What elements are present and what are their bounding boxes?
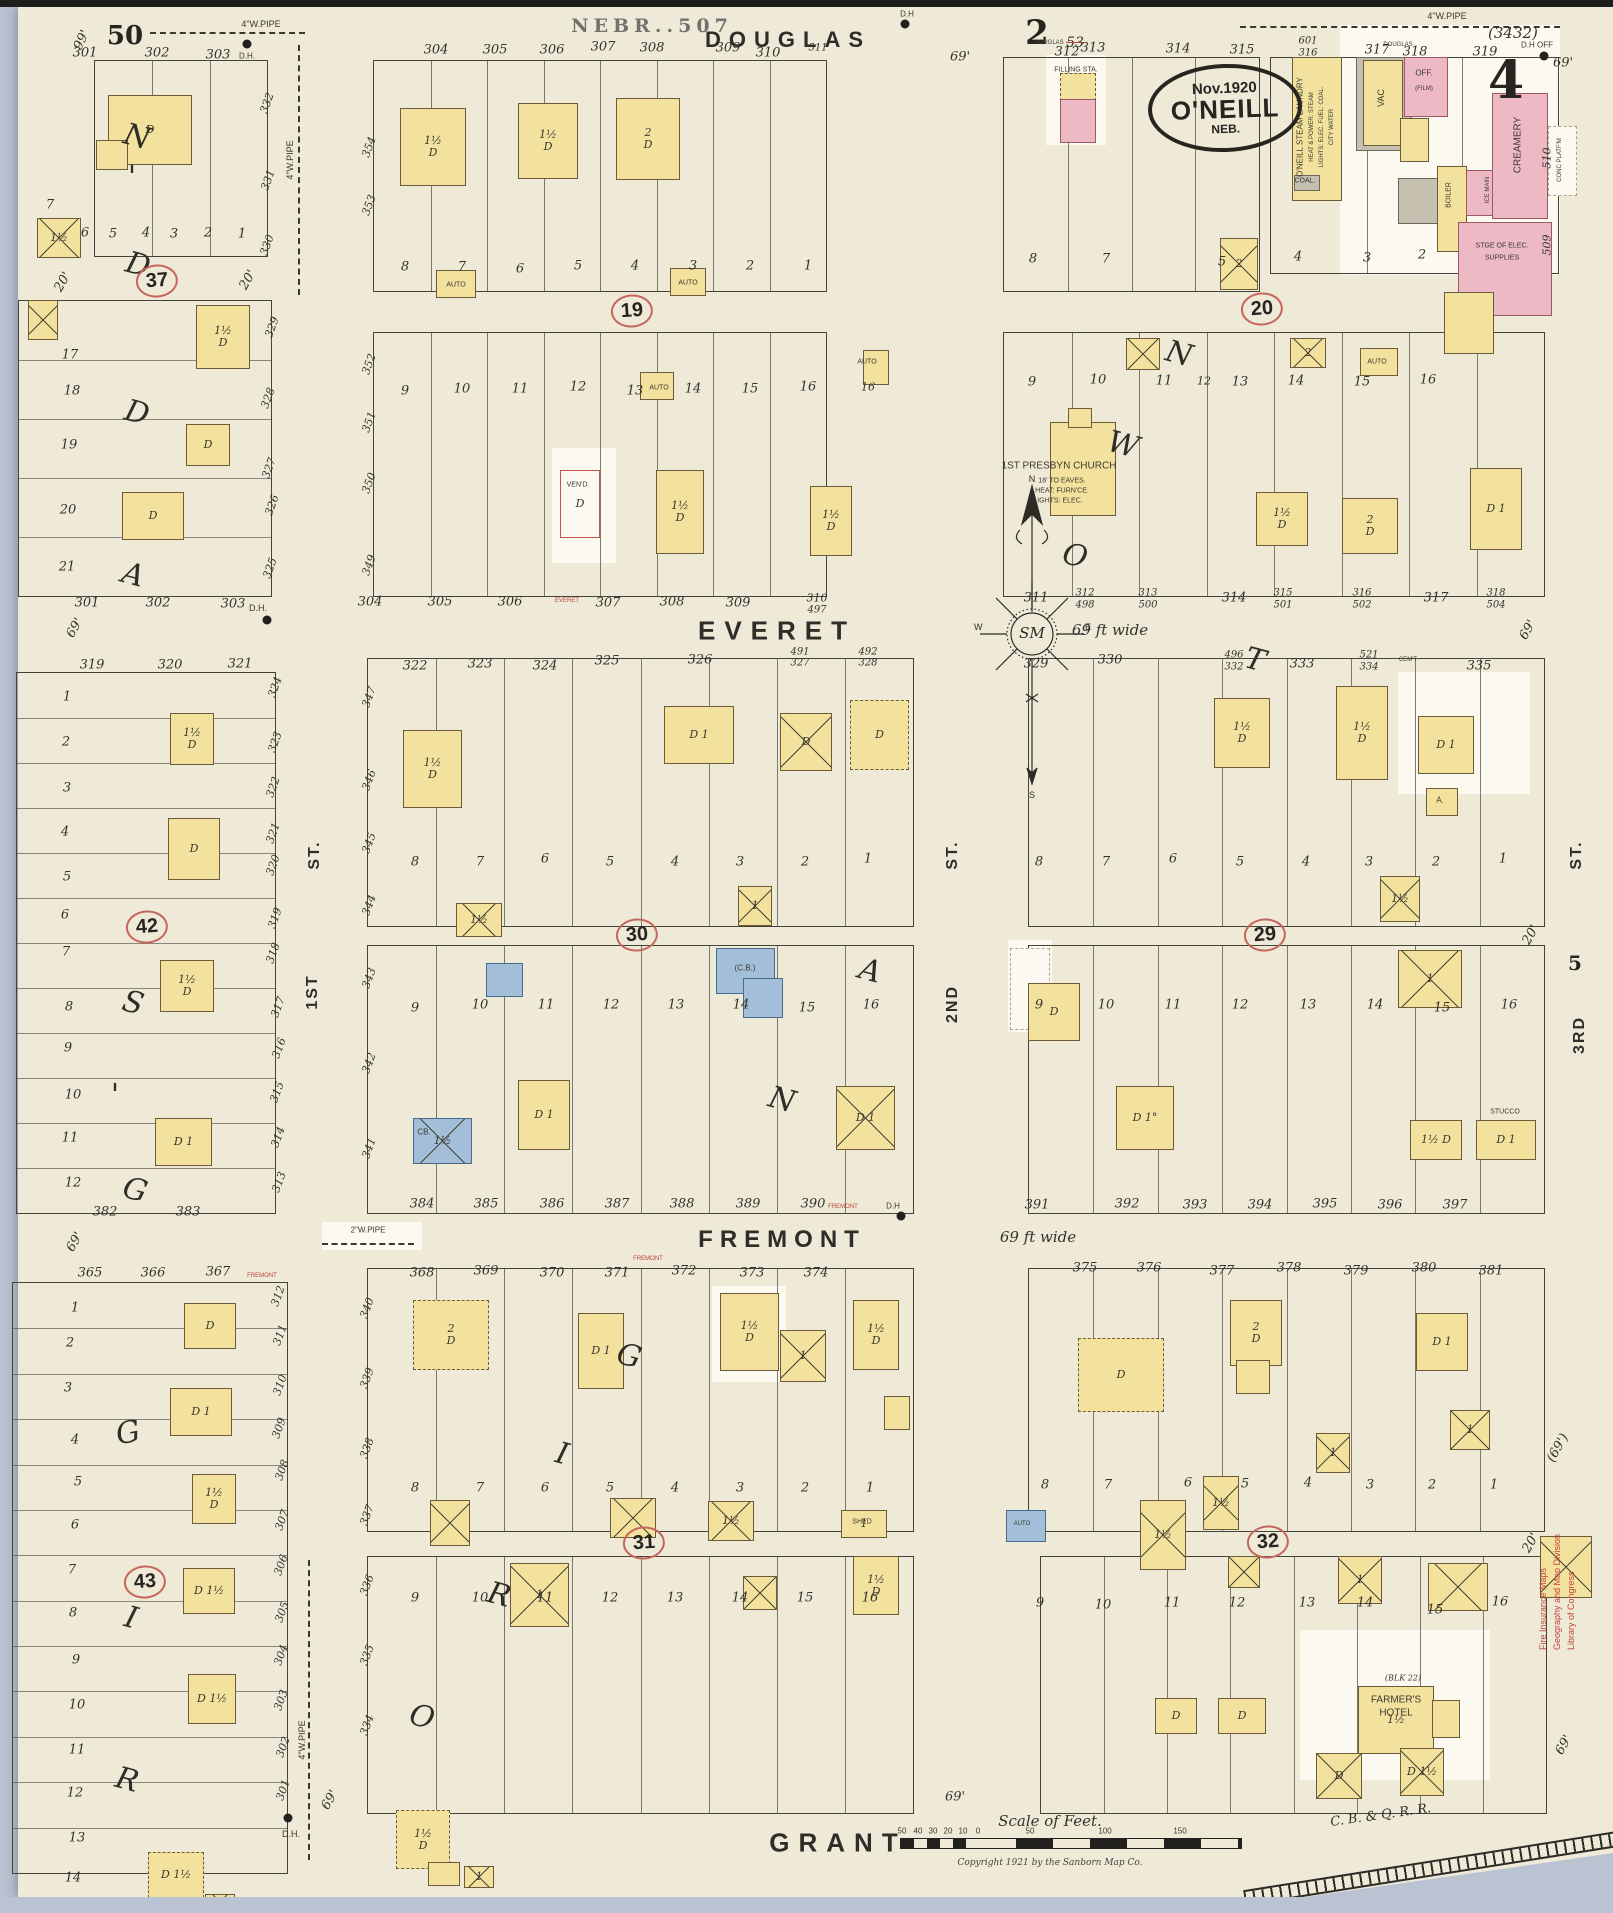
map-label: CB. — [417, 1128, 430, 1137]
building-label: 1 — [1467, 1424, 1474, 1436]
lot-number: 8 — [65, 1000, 73, 1015]
building — [1068, 408, 1092, 428]
block-number-circle: 20 — [1240, 291, 1284, 327]
lot-number: 16 — [800, 380, 817, 395]
lot-line — [1207, 333, 1208, 596]
lot-line — [504, 1269, 505, 1531]
lot-number: 6 — [1184, 1476, 1192, 1491]
lot-line — [504, 659, 505, 926]
lot-line — [1158, 946, 1159, 1213]
lot-line — [1415, 1269, 1416, 1531]
lot-number: 2 — [1432, 855, 1440, 870]
lot-line — [845, 659, 846, 926]
lot-line — [1132, 58, 1133, 291]
lot-number: 3 — [1366, 1478, 1374, 1493]
lot-number: 392 — [1115, 1197, 1140, 1212]
lot-number: 2 — [801, 1481, 809, 1496]
lot-number: 11 — [1165, 998, 1182, 1013]
copyright-line: Copyright 1921 by the Sanborn Map Co. — [957, 1858, 1142, 1868]
building-label: 1 — [476, 1871, 483, 1883]
lot-number: 305 — [428, 595, 453, 610]
lot-number: 305 — [483, 43, 508, 58]
lot-number: 2 — [62, 735, 70, 750]
scale-tick-label: 30 — [929, 1827, 938, 1836]
building: D — [1218, 1698, 1266, 1734]
building-label: D 1 — [591, 1345, 610, 1357]
lot-number: 16 — [1420, 373, 1437, 388]
building-label: D 1 — [689, 729, 708, 741]
building: D 1½ — [188, 1674, 236, 1724]
lot-number: 321 — [228, 657, 253, 672]
map-label: D.H. — [282, 1829, 300, 1839]
lot-line — [17, 718, 275, 719]
map-label: VEN'D. — [567, 482, 590, 489]
lot-number: 387 — [605, 1197, 630, 1212]
building-label: D — [204, 439, 213, 451]
lot-number: 3 — [1363, 251, 1371, 266]
lot-number: 14 — [733, 998, 750, 1013]
lot-number: 370 — [540, 1266, 565, 1281]
map-label: ICE MAIN — [1485, 177, 1491, 204]
building-label: 2 D — [447, 1323, 456, 1346]
water-pipe-line — [298, 45, 300, 295]
lot-number: 396 — [1378, 1198, 1403, 1213]
building — [1228, 1556, 1260, 1588]
map-label: AUTO — [446, 282, 465, 289]
building: 1 — [1316, 1433, 1350, 1473]
map-label: 20' — [51, 270, 74, 295]
building: 1½ D — [853, 1300, 899, 1370]
lot-line — [17, 1168, 275, 1169]
building-label: 1 — [1427, 973, 1434, 985]
lot-number: 315 — [1273, 588, 1292, 599]
lot-number: 9 — [411, 1591, 419, 1606]
building-label: D 1 — [1432, 1336, 1451, 1348]
building: D — [1155, 1698, 1197, 1734]
lot-number: 8 — [1035, 855, 1043, 870]
lot-line — [770, 61, 771, 291]
hydrant-dot — [1540, 52, 1549, 61]
water-pipe-line — [150, 32, 305, 34]
lot-number: 13 — [627, 384, 644, 399]
building: D 1 — [836, 1086, 895, 1150]
lot-number: 1 — [238, 227, 246, 242]
lot-line — [1480, 659, 1481, 926]
lot-number: 6 — [81, 226, 89, 241]
building: D — [122, 492, 184, 540]
lot-number: 16 — [861, 381, 875, 394]
building: D — [560, 470, 600, 538]
lot-line — [641, 946, 642, 1213]
building: 1½ — [708, 1501, 754, 1541]
building — [1444, 292, 1494, 354]
lot-number: 316 — [1352, 588, 1371, 599]
lot-number: 316 — [1298, 48, 1317, 59]
scale-tick-label: 50 — [898, 1827, 907, 1836]
lot-number: 3 — [736, 1481, 744, 1496]
building-label: 2 — [1305, 347, 1312, 359]
street-label: ST. — [1568, 840, 1586, 869]
lot-number: 308 — [640, 41, 665, 56]
lot-number: 11 — [538, 998, 555, 1013]
building: 1 — [780, 1330, 826, 1382]
building: 1½ D — [1256, 492, 1308, 546]
scale-tick-label: 40 — [914, 1827, 923, 1836]
building: 2 — [1290, 338, 1326, 368]
map-label: VAC — [1376, 89, 1386, 107]
lot-number: 7 — [476, 855, 484, 870]
building — [884, 1396, 910, 1430]
building: D 1 — [1470, 468, 1522, 550]
lot-number: 9 — [1036, 1596, 1044, 1611]
lot-number: 3 — [689, 259, 697, 274]
lot-line — [13, 1646, 287, 1647]
lot-number: 2 — [204, 226, 212, 241]
street-label: EVERET — [698, 616, 856, 647]
plat-letter: ' — [111, 1078, 119, 1113]
building: D 1 — [155, 1118, 212, 1166]
lot-line — [1342, 333, 1343, 596]
building-label: 1½ D — [671, 500, 689, 523]
lot-number: 2 — [746, 259, 754, 274]
lot-number: 333 — [1290, 657, 1315, 672]
lot-number: 14 — [1367, 998, 1384, 1013]
library-of-congress-stamp: Fire Insurance Maps Geography and Map Di… — [1538, 1400, 1598, 1660]
lot-number: 5 — [1241, 1477, 1249, 1492]
building-label: 1 — [752, 900, 759, 912]
lot-number: 16 — [1492, 1595, 1509, 1610]
building: D 1 — [518, 1080, 570, 1150]
building: 2 D — [413, 1300, 489, 1370]
building-label: 1½ D — [741, 1320, 759, 1343]
lot-line — [431, 333, 432, 596]
scale-tick-label: 150 — [1173, 1827, 1186, 1836]
map-label: EVERET — [555, 598, 579, 604]
lot-number: 6 — [1169, 852, 1177, 867]
lot-number: 15 — [799, 1001, 816, 1016]
lot-number: 307 — [591, 40, 616, 55]
lot-number: 13 — [668, 998, 685, 1013]
map-label: LIGHTS: ELEC. FUEL: COAL. — [1319, 87, 1325, 168]
lot-number: 7 — [1102, 855, 1110, 870]
building-label: D — [1117, 1369, 1126, 1381]
lot-number: 491 — [790, 647, 809, 658]
lot-number: 7 — [1104, 1478, 1112, 1493]
map-label: 69' — [63, 1230, 86, 1255]
building — [1432, 1700, 1460, 1738]
lot-line — [1222, 946, 1223, 1213]
hydrant-dot — [897, 1212, 906, 1221]
lot-line — [13, 1601, 287, 1602]
lot-number: 14 — [65, 1871, 82, 1886]
lot-line — [713, 333, 714, 596]
loc-stamp-line: Library of Congress — [1566, 1571, 1576, 1650]
sheet-number: 4 — [1488, 50, 1524, 111]
sanborn-map-sheet: 1½D1½ DDD1½ DD1½ DD 1DD 11½ DD 1½D 1½D 1… — [0, 0, 1613, 1913]
compass-east: E — [1085, 622, 1091, 632]
city-block — [1028, 658, 1545, 927]
building-label: 1 — [800, 1350, 807, 1362]
lot-number: 14 — [732, 1591, 749, 1606]
lot-number: 501 — [1273, 600, 1292, 611]
map-label: A. — [1436, 796, 1444, 805]
lot-number: 4 — [71, 1433, 79, 1448]
scale-tick-label: 20 — [944, 1827, 953, 1836]
lot-number: 15 — [742, 382, 759, 397]
building — [428, 1862, 460, 1886]
water-pipe-line — [308, 1560, 310, 1860]
map-label: 2 — [1025, 13, 1049, 53]
lot-number: 18 — [64, 384, 81, 399]
building: D 1 — [1418, 716, 1474, 774]
lot-line — [1158, 659, 1159, 926]
building-label: 1½ D — [1353, 721, 1371, 744]
building — [486, 963, 523, 997]
building-label: D — [206, 1320, 215, 1332]
map-label: CEM'T — [1399, 657, 1417, 663]
lot-number: 388 — [670, 1197, 695, 1212]
lot-number: 4 — [1304, 1476, 1312, 1491]
lot-number: 5 — [74, 1475, 82, 1490]
lot-line — [709, 1557, 710, 1813]
lot-number: 14 — [685, 382, 702, 397]
lot-number: 3 — [64, 1381, 72, 1396]
building: D — [184, 1303, 236, 1349]
building: 1½ D — [518, 103, 578, 179]
compass-monogram: SM — [1019, 624, 1045, 642]
lot-number: 1 — [63, 690, 71, 705]
lot-number: 19 — [61, 438, 78, 453]
building: 1½ D — [400, 108, 466, 186]
lot-number: 6 — [541, 1481, 549, 1496]
lot-number: 13 — [1232, 375, 1249, 390]
lot-number: 3 — [1365, 855, 1373, 870]
lot-number: 1 — [864, 852, 872, 867]
street-label: 2ND — [944, 985, 962, 1023]
building-label: D — [190, 843, 199, 855]
building — [28, 300, 58, 340]
lot-number: 4 — [1294, 250, 1302, 265]
lot-number: 318 — [1403, 45, 1428, 60]
lot-number: 4 — [61, 825, 69, 840]
lot-number: 378 — [1277, 1261, 1302, 1276]
lot-number: 15 — [797, 1591, 814, 1606]
lot-line — [1480, 1269, 1481, 1531]
lot-number: 306 — [498, 595, 523, 610]
hydrant-dot — [243, 40, 252, 49]
lot-number: 1 — [71, 1301, 79, 1316]
building: 1½ — [1140, 1500, 1186, 1570]
building-label: 1½ D — [183, 727, 201, 750]
building: 1½ D — [170, 713, 214, 765]
lot-number: 334 — [1359, 662, 1378, 673]
lot-number: 9 — [1028, 375, 1036, 390]
building: D 1 — [1416, 1313, 1468, 1371]
lot-number: 3 — [170, 227, 178, 242]
volume-number: (3432) — [1488, 24, 1538, 42]
lot-number: 11 — [537, 1591, 554, 1606]
lot-number: 510 — [1541, 148, 1554, 169]
block-number-circle: 19 — [610, 293, 654, 329]
hydrant-dot — [263, 616, 272, 625]
map-label: 5 — [1568, 951, 1582, 975]
lot-number: 12 — [603, 998, 620, 1013]
lot-number: 5 — [574, 259, 582, 274]
building-label: 1½ — [50, 232, 68, 244]
lot-line — [19, 478, 271, 479]
building-label: 1½ D — [424, 135, 442, 158]
lot-number: 11 — [62, 1131, 79, 1146]
loc-stamp-line: Geography and Map Division — [1552, 1534, 1562, 1650]
lot-line — [709, 659, 710, 926]
lot-line — [13, 1510, 287, 1511]
lot-line — [845, 946, 846, 1213]
lot-number: 8 — [69, 1606, 77, 1621]
lot-number: 307 — [596, 596, 621, 611]
building-label: D — [1172, 1710, 1181, 1722]
lot-line — [713, 61, 714, 291]
building-label: 2 D — [1366, 514, 1375, 537]
lot-number: 327 — [790, 658, 809, 669]
lot-line — [1093, 659, 1094, 926]
building-label: 1½ D — [1273, 507, 1291, 530]
lot-number: 509 — [1541, 235, 1554, 256]
map-label: CREAMERY — [1513, 117, 1524, 174]
lot-number: 521 — [1359, 650, 1378, 661]
lot-line — [544, 333, 545, 596]
street-label: ST. — [306, 840, 324, 869]
building — [1126, 338, 1160, 370]
street-label: ST. — [944, 840, 962, 869]
lot-number: 395 — [1313, 1197, 1338, 1212]
lot-number: 10 — [454, 382, 471, 397]
map-label: D.H — [900, 10, 914, 19]
map-label: STGE OF ELEC. — [1476, 243, 1529, 250]
lot-number: 496 — [1224, 650, 1243, 661]
lot-line — [1287, 659, 1288, 926]
map-label: COAL. — [1294, 178, 1315, 185]
block-number-circle: 37 — [135, 263, 179, 299]
street-label: 3RD — [1571, 1016, 1589, 1054]
lot-number: 4 — [671, 855, 679, 870]
building: 1½ — [456, 903, 502, 937]
map-label: OFF. — [1415, 69, 1432, 78]
lot-number: 380 — [1412, 1261, 1437, 1276]
lot-number: 11 — [1156, 374, 1173, 389]
lot-number: 308 — [660, 595, 685, 610]
building-label: D 1 — [534, 1109, 553, 1121]
building: 1½ D — [192, 1474, 236, 1524]
lot-number: 325 — [595, 654, 620, 669]
lot-number: 8 — [411, 855, 419, 870]
lot-line — [709, 946, 710, 1213]
map-label: 4"W.PIPE — [241, 19, 280, 29]
building: 1½ D — [810, 486, 852, 556]
lot-number: 13 — [667, 1591, 684, 1606]
lot-number: 391 — [1025, 1198, 1050, 1213]
map-label: SUPPLIES — [1485, 255, 1519, 262]
lot-line — [845, 1557, 846, 1813]
lot-number: 302 — [145, 46, 170, 61]
lot-number: 385 — [474, 1197, 499, 1212]
lot-number: 302 — [146, 596, 171, 611]
lot-number: 1 — [1490, 1478, 1498, 1493]
building: D 1 — [170, 1388, 232, 1436]
lot-number: 11 — [512, 382, 529, 397]
lot-line — [17, 1123, 275, 1124]
building: 2 D — [1230, 1300, 1282, 1366]
lot-number: 16 — [862, 1591, 879, 1606]
hydrant-dot — [284, 1814, 293, 1823]
lot-line — [1477, 333, 1478, 596]
lot-line — [845, 1269, 846, 1531]
lot-number: 10 — [1095, 1598, 1112, 1613]
lot-line — [13, 1419, 287, 1420]
building-label: 1½ — [1154, 1529, 1172, 1541]
lot-number: 601 — [1298, 36, 1317, 47]
lot-number: 8 — [1029, 252, 1037, 267]
street-label: FREMONT — [698, 1226, 866, 1254]
building-label: D 1½ — [1407, 1766, 1437, 1778]
scale-label: Scale of Feet. — [998, 1812, 1102, 1830]
lot-number: 319 — [80, 658, 105, 673]
water-pipe-line — [322, 1243, 414, 1245]
building-label: D — [1335, 1770, 1344, 1782]
lot-number: 13 — [69, 1831, 86, 1846]
map-label: 69' — [950, 50, 970, 65]
building-label: 2 — [1236, 258, 1243, 270]
building: D 1 — [1476, 1120, 1536, 1160]
lot-line — [572, 946, 573, 1213]
building-label: D 1 — [174, 1136, 193, 1148]
lot-number: 367 — [206, 1265, 231, 1280]
lot-number: 306 — [540, 43, 565, 58]
lot-line — [1351, 1269, 1352, 1531]
lot-number: 369 — [474, 1264, 499, 1279]
map-label: D.H. — [249, 603, 267, 613]
lot-line — [709, 1269, 710, 1531]
lot-number: 312 — [1055, 45, 1080, 60]
lot-number: 315 — [1230, 43, 1255, 58]
building-label: D 1 — [856, 1112, 875, 1124]
building: 1½ — [1380, 876, 1420, 922]
lot-number: 389 — [736, 1197, 761, 1212]
lot-number: 1 — [804, 259, 812, 274]
map-label: 69' — [63, 616, 86, 641]
lot-number: 314 — [1222, 591, 1247, 606]
building-label: 1½ D — [822, 509, 840, 532]
building — [1400, 118, 1429, 162]
map-label: 4"W.PIPE — [285, 140, 295, 179]
map-label: 4"W.PIPE — [297, 1720, 307, 1759]
lot-line — [1104, 1557, 1105, 1813]
lot-number: 384 — [410, 1197, 435, 1212]
map-label: BOILER — [1446, 182, 1453, 208]
map-label: 69' — [1516, 618, 1539, 643]
building-label: 1 — [1330, 1447, 1337, 1459]
lot-number: 12 — [67, 1786, 84, 1801]
lot-number: 379 — [1344, 1264, 1369, 1279]
lot-number: 4 — [142, 226, 150, 241]
lot-line — [1287, 946, 1288, 1213]
lot-number: 2 — [1418, 248, 1426, 263]
map-label: SHED — [852, 1519, 871, 1526]
building: D — [186, 424, 230, 466]
lot-line — [17, 1033, 275, 1034]
lot-line — [13, 1465, 287, 1466]
lot-number: 16 — [1501, 998, 1518, 1013]
lot-number: 303 — [221, 597, 246, 612]
